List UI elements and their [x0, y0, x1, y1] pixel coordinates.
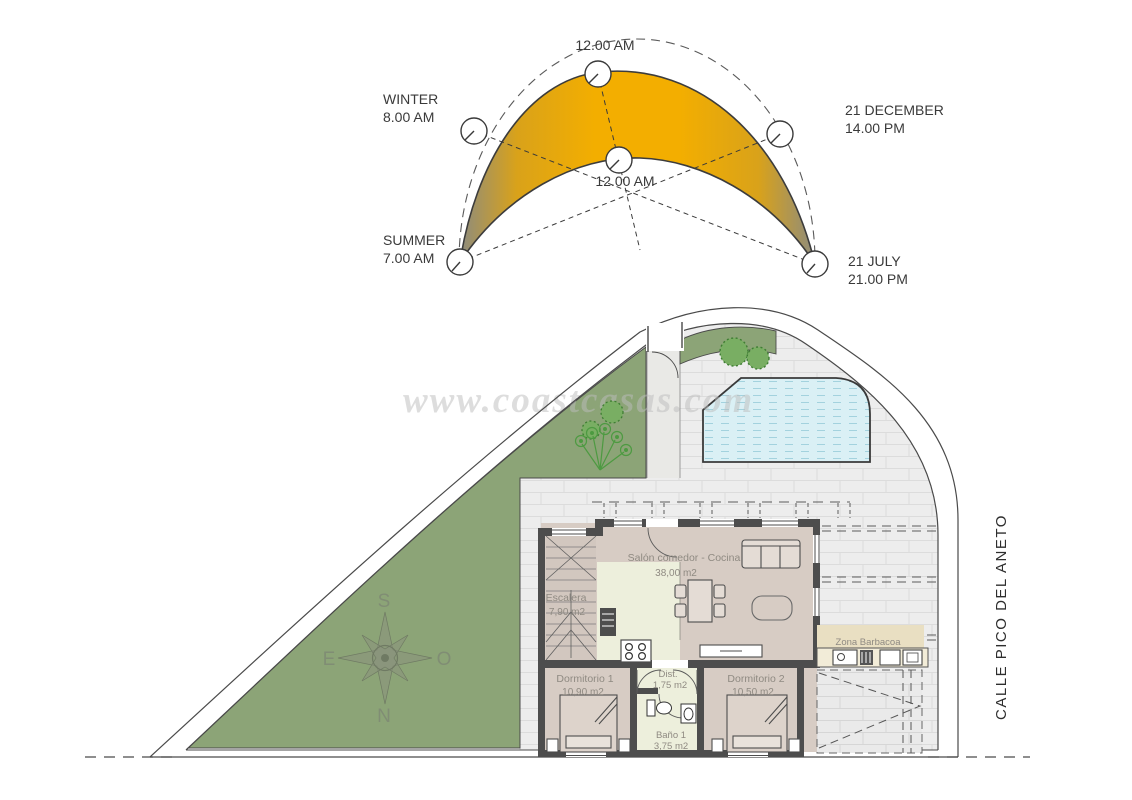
nightstand [619, 739, 630, 752]
sun-label-december: 21 DECEMBER [845, 102, 944, 118]
site-plan: www.coastcasas.com [85, 308, 1030, 757]
compass-south: S [378, 591, 391, 612]
escalera-area: 7,90 m2 [549, 607, 586, 618]
sun-path-diagram: 12.00 AM WINTER 8.00 AM 21 DECEMBER 14.0… [383, 37, 944, 287]
escalera-label: Escalera [546, 592, 587, 604]
site-plan-drawing: 12.00 AM WINTER 8.00 AM 21 DECEMBER 14.0… [0, 0, 1132, 800]
chair [714, 604, 725, 617]
dormitorio2-label: Dormitorio 2 [727, 673, 784, 685]
plan-svg: 12.00 AM WINTER 8.00 AM 21 DECEMBER 14.0… [0, 0, 1132, 800]
dormitorio1-area: 10,90 m2 [562, 687, 604, 698]
sun-label-winter: WINTER [383, 91, 438, 107]
house: Salón comedor - Cocina 38,00 m2 Escalera… [538, 519, 820, 757]
sun-label-noon-center: 12.00 AM [595, 173, 654, 189]
compass-west: O [437, 649, 452, 670]
sun-label-summer-time: 7.00 AM [383, 250, 434, 266]
bush [720, 338, 748, 366]
sun-label-summer: SUMMER [383, 232, 445, 248]
chair [714, 585, 725, 598]
stove [621, 640, 651, 662]
compass-north: N [377, 706, 391, 727]
dormitorio1-label: Dormitorio 1 [556, 673, 613, 685]
nightstand [547, 739, 558, 752]
compass-east: E [323, 649, 336, 670]
toilet-bowl [657, 702, 672, 714]
pillow-1 [566, 736, 611, 748]
bush [747, 347, 769, 369]
salon-label: Salón comedor - Cocina [628, 552, 741, 564]
bano-area: 3,75 m2 [654, 741, 688, 752]
dormitorio2-area: 10,50 m2 [732, 687, 774, 698]
bedroom-1 [547, 695, 630, 752]
sun-label-july: 21 JULY [848, 253, 901, 269]
sun-label-noon-top: 12.00 AM [575, 37, 634, 53]
bush [601, 401, 623, 423]
fridge [600, 608, 616, 636]
pillow-2 [733, 736, 781, 748]
dining-table [688, 580, 712, 622]
dist-label: Dist. [659, 669, 678, 680]
bano-label: Baño 1 [656, 730, 686, 741]
nightstand [789, 739, 800, 752]
parking-area [817, 670, 922, 753]
sofa [742, 540, 800, 568]
sun-crescent [460, 71, 815, 264]
chair [675, 585, 686, 598]
sun-label-july-time: 21.00 PM [848, 271, 908, 287]
watermark: www.coastcasas.com [403, 380, 754, 421]
barbacoa-label: Zona Barbacoa [836, 637, 902, 648]
dist-area: 1,75 m2 [653, 680, 687, 691]
sun-label-december-time: 14.00 PM [845, 120, 905, 136]
barbecue-zone: Zona Barbacoa [817, 625, 928, 667]
sun-label-winter-time: 8.00 AM [383, 109, 434, 125]
salon-area: 38,00 m2 [655, 568, 697, 579]
toilet-tank [647, 700, 655, 716]
nightstand [712, 739, 723, 752]
street-name: CALLE PICO DEL ANETO [993, 514, 1010, 720]
chair [675, 604, 686, 617]
